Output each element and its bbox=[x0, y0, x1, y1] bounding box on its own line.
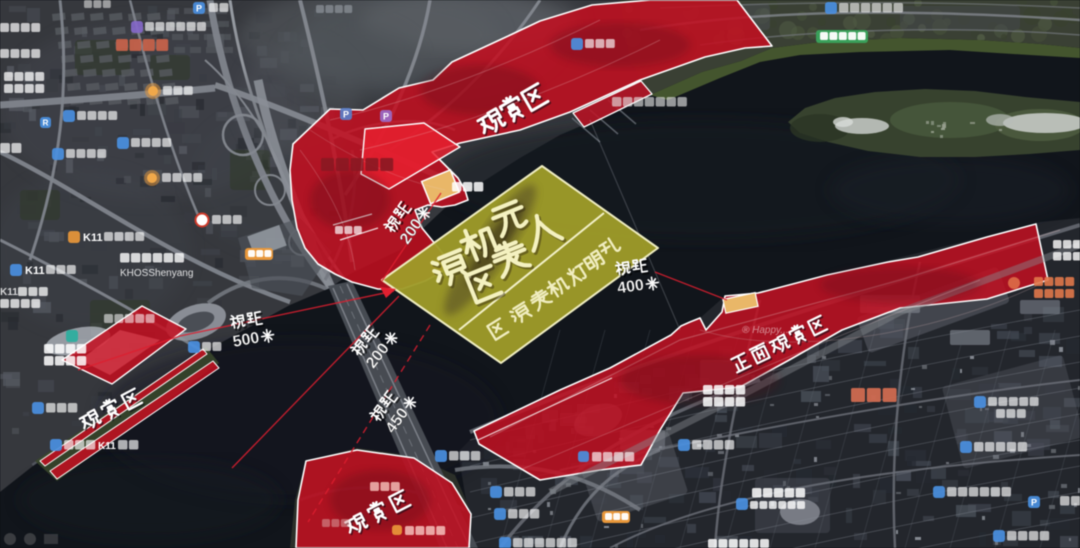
svg-text:P: P bbox=[383, 111, 389, 121]
svg-text:P: P bbox=[1031, 497, 1037, 507]
svg-text:P: P bbox=[196, 3, 202, 13]
svg-text:K11: K11 bbox=[83, 232, 103, 244]
svg-text:® Happy...: ® Happy... bbox=[742, 325, 789, 336]
svg-text:KHOSShenyang: KHOSShenyang bbox=[120, 268, 193, 279]
svg-text:P: P bbox=[343, 109, 349, 119]
svg-text:K11: K11 bbox=[0, 287, 18, 298]
svg-text:K11: K11 bbox=[25, 265, 45, 277]
svg-text:R: R bbox=[43, 119, 49, 128]
svg-text:K11: K11 bbox=[98, 441, 116, 452]
